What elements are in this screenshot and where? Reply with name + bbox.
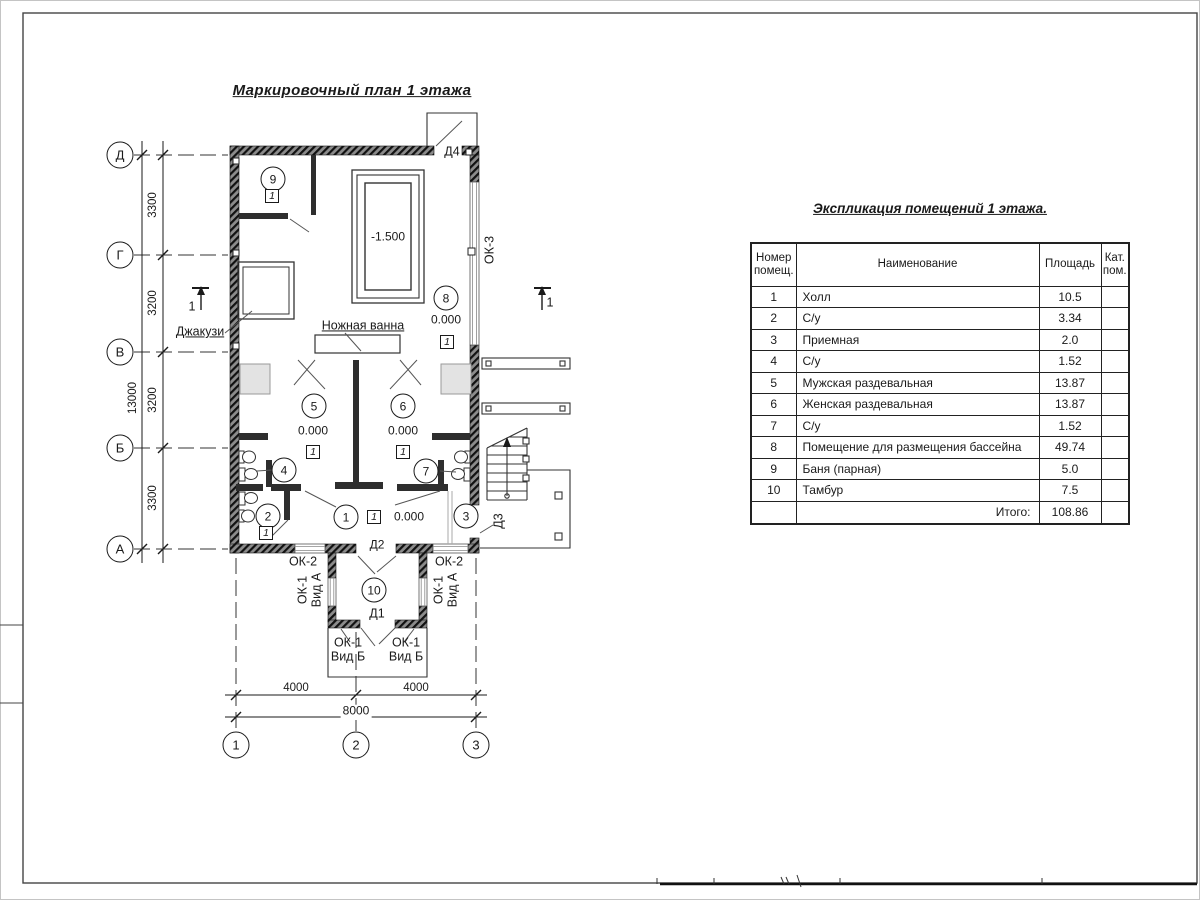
room-circle-10: 10 xyxy=(362,578,387,603)
floor-marker-room5: 1 xyxy=(306,445,320,459)
cell-cat xyxy=(1101,329,1129,351)
axis-label: А xyxy=(116,542,125,557)
porch-top xyxy=(427,113,477,146)
table-title: Экспликация помещений 1 этажа. xyxy=(813,202,1047,216)
door-label-d2: Д2 xyxy=(368,539,387,552)
axis-bubble-1: 1 xyxy=(223,732,250,759)
cell-num: 3 xyxy=(751,329,796,351)
cell-area: 3.34 xyxy=(1039,308,1101,330)
sink-room2 xyxy=(239,510,255,522)
room-circle-4: 4 xyxy=(272,458,297,483)
cell-cat xyxy=(1101,437,1129,459)
window-ok1-left xyxy=(328,578,336,606)
cell-num: 2 xyxy=(751,308,796,330)
window-ok2-right xyxy=(433,544,468,553)
cell-empty xyxy=(751,501,796,524)
table-row: 4С/у1.52 xyxy=(751,351,1129,373)
room-circle-6: 6 xyxy=(391,394,416,419)
table-row: 7С/у1.52 xyxy=(751,415,1129,437)
window-label-ok1-right: ОК-1 xyxy=(432,576,445,604)
window-ok1-right xyxy=(419,578,427,606)
window-label-ok1-b-left: ОК-1 xyxy=(334,636,362,649)
floor-marker-room8: 1 xyxy=(440,335,454,349)
beams xyxy=(482,358,570,414)
window-view-a-left: Вид А xyxy=(310,573,323,607)
cell-cat xyxy=(1101,372,1129,394)
dim-3200-lower: 3200 xyxy=(147,387,159,413)
cell-num: 10 xyxy=(751,480,796,502)
cell-area: 10.5 xyxy=(1039,286,1101,308)
room-number: 10 xyxy=(367,583,380,597)
axis-bubble-a: А xyxy=(107,536,134,563)
elevation-room5: 0.000 xyxy=(296,425,330,438)
axis-bubble-v: В xyxy=(107,339,134,366)
cell-cat xyxy=(1101,308,1129,330)
header-name: Наименование xyxy=(796,243,1039,286)
foot-bath xyxy=(315,335,400,353)
header-num: Номер помещ. xyxy=(751,243,796,286)
toilet-room7 xyxy=(452,468,471,481)
floor-marker-room1: 1 xyxy=(367,510,381,524)
cell-area: 13.87 xyxy=(1039,372,1101,394)
room-number: 8 xyxy=(443,291,450,305)
cell-cat xyxy=(1101,458,1129,480)
window-label-ok2-left: ОК-2 xyxy=(289,555,317,568)
door-label-d3: Д3 xyxy=(492,513,505,528)
cell-area: 2.0 xyxy=(1039,329,1101,351)
axis-label: 1 xyxy=(232,738,239,753)
sink-room7 xyxy=(455,451,471,463)
cell-area: 49.74 xyxy=(1039,437,1101,459)
room-circle-8: 8 xyxy=(434,286,459,311)
sink-room4 xyxy=(239,451,256,463)
room-number: 5 xyxy=(311,399,318,413)
header-area: Площадь xyxy=(1039,243,1101,286)
elevation-pool: -1.500 xyxy=(369,231,407,244)
cell-cat xyxy=(1101,351,1129,373)
room-circle-3: 3 xyxy=(454,504,479,529)
cell-name: Тамбур xyxy=(796,480,1039,502)
total-label: Итого: xyxy=(796,501,1039,524)
axis-label: 2 xyxy=(352,738,359,753)
cell-area: 5.0 xyxy=(1039,458,1101,480)
window-view-b-left: Вид Б xyxy=(331,650,365,663)
dim-13000-total: 13000 xyxy=(127,382,139,414)
cell-name: С/у xyxy=(796,415,1039,437)
floor-marker-room6: 1 xyxy=(396,445,410,459)
door-label-d4: Д4 xyxy=(444,145,459,158)
axis-bubble-g: Г xyxy=(107,242,134,269)
dim-3300-bottom: 3300 xyxy=(147,485,159,511)
axis-bubble-3: 3 xyxy=(463,732,490,759)
plan-title: Маркировочный план 1 этажа xyxy=(233,83,472,99)
elevation-room1: 0.000 xyxy=(392,511,426,524)
corridor-lines xyxy=(448,491,452,544)
room-circle-1: 1 xyxy=(334,505,359,530)
cell-area: 1.52 xyxy=(1039,415,1101,437)
dim-4000-left: 4000 xyxy=(283,682,309,694)
elevation-room6: 0.000 xyxy=(386,425,420,438)
toilet-room2 xyxy=(239,492,258,505)
window-view-a-right: Вид А xyxy=(446,573,459,607)
room-circle-7: 7 xyxy=(414,459,439,484)
cell-name: Холл xyxy=(796,286,1039,308)
table-row: 5Мужская раздевальная13.87 xyxy=(751,372,1129,394)
axis-bubble-d: Д xyxy=(107,142,134,169)
cell-area: 7.5 xyxy=(1039,480,1101,502)
room-number: 2 xyxy=(265,509,272,523)
drawing-sheet: Маркировочный план 1 этажа Экспликация п… xyxy=(0,0,1200,900)
table-row: 8Помещение для размещения бассейна49.74 xyxy=(751,437,1129,459)
window-label-ok1-b-right: ОК-1 xyxy=(392,636,420,649)
cell-name: Помещение для размещения бассейна xyxy=(796,437,1039,459)
axis-bubble-2: 2 xyxy=(343,732,370,759)
jacuzzi xyxy=(238,262,294,319)
elevation-room8: 0.000 xyxy=(429,314,463,327)
table-row: 2С/у3.34 xyxy=(751,308,1129,330)
cell-name: Мужская раздевальная xyxy=(796,372,1039,394)
jacuzzi-label: Джакузи xyxy=(176,325,224,338)
cell-cat xyxy=(1101,286,1129,308)
cell-cat xyxy=(1101,501,1129,524)
table-row: 10Тамбур7.5 xyxy=(751,480,1129,502)
foot-bath-label: Ножная ванна xyxy=(322,319,405,332)
total-value: 108.86 xyxy=(1039,501,1101,524)
cell-num: 5 xyxy=(751,372,796,394)
room-number: 1 xyxy=(343,510,350,524)
axis-lines xyxy=(134,155,476,731)
table-row: 9Баня (парная)5.0 xyxy=(751,458,1129,480)
window-view-b-right: Вид Б xyxy=(389,650,423,663)
room-circle-5: 5 xyxy=(302,394,327,419)
room-circle-9: 9 xyxy=(261,167,286,192)
window-ok2-left xyxy=(295,544,325,553)
dim-4000-right: 4000 xyxy=(403,682,429,694)
window-ok3 xyxy=(470,182,479,345)
cell-cat xyxy=(1101,415,1129,437)
cell-num: 1 xyxy=(751,286,796,308)
axis-label: В xyxy=(116,345,125,360)
table-row: 6Женская раздевальная13.87 xyxy=(751,394,1129,416)
table-header-row: Номер помещ. Наименование Площадь Кат. п… xyxy=(751,243,1129,286)
cell-name: Приемная xyxy=(796,329,1039,351)
section-number-right: 1 xyxy=(547,296,554,309)
cell-name: Женская раздевальная xyxy=(796,394,1039,416)
section-number-left: 1 xyxy=(189,300,196,313)
window-label-ok3: ОК-3 xyxy=(483,236,496,264)
cell-area: 1.52 xyxy=(1039,351,1101,373)
room-number: 9 xyxy=(270,172,277,186)
cell-name: С/у xyxy=(796,308,1039,330)
explication-table: Номер помещ. Наименование Площадь Кат. п… xyxy=(750,242,1130,525)
room-number: 7 xyxy=(423,464,430,478)
dim-3300-top: 3300 xyxy=(147,192,159,218)
axis-label: Д xyxy=(116,148,125,163)
cell-cat xyxy=(1101,394,1129,416)
dim-8000-total: 8000 xyxy=(341,705,372,718)
cell-num: 6 xyxy=(751,394,796,416)
axis-bubble-b: Б xyxy=(107,435,134,462)
room-number: 6 xyxy=(400,399,407,413)
room-number: 4 xyxy=(281,463,288,477)
axis-label: 3 xyxy=(472,738,479,753)
cell-num: 4 xyxy=(751,351,796,373)
cell-name: Баня (парная) xyxy=(796,458,1039,480)
cell-num: 9 xyxy=(751,458,796,480)
window-label-ok2-right: ОК-2 xyxy=(435,555,463,568)
table-row: 3Приемная2.0 xyxy=(751,329,1129,351)
floor-marker-room9: 1 xyxy=(265,189,279,203)
table-row: 1Холл10.5 xyxy=(751,286,1129,308)
dim-3200-upper: 3200 xyxy=(147,290,159,316)
axis-label: Б xyxy=(116,441,125,456)
table-total-row: Итого: 108.86 xyxy=(751,501,1129,524)
cell-num: 8 xyxy=(751,437,796,459)
cell-num: 7 xyxy=(751,415,796,437)
cell-name: С/у xyxy=(796,351,1039,373)
cell-area: 13.87 xyxy=(1039,394,1101,416)
window-label-ok1-left: ОК-1 xyxy=(296,576,309,604)
floor-marker-room2: 1 xyxy=(259,526,273,540)
door-label-d1: Д1 xyxy=(369,607,384,620)
stairs xyxy=(487,428,529,500)
room-circle-2: 2 xyxy=(256,504,281,529)
toilet-room4 xyxy=(239,468,258,481)
room-number: 3 xyxy=(463,509,470,523)
axis-label: Г xyxy=(116,248,123,263)
header-cat: Кат. пом. xyxy=(1101,243,1129,286)
cell-cat xyxy=(1101,480,1129,502)
